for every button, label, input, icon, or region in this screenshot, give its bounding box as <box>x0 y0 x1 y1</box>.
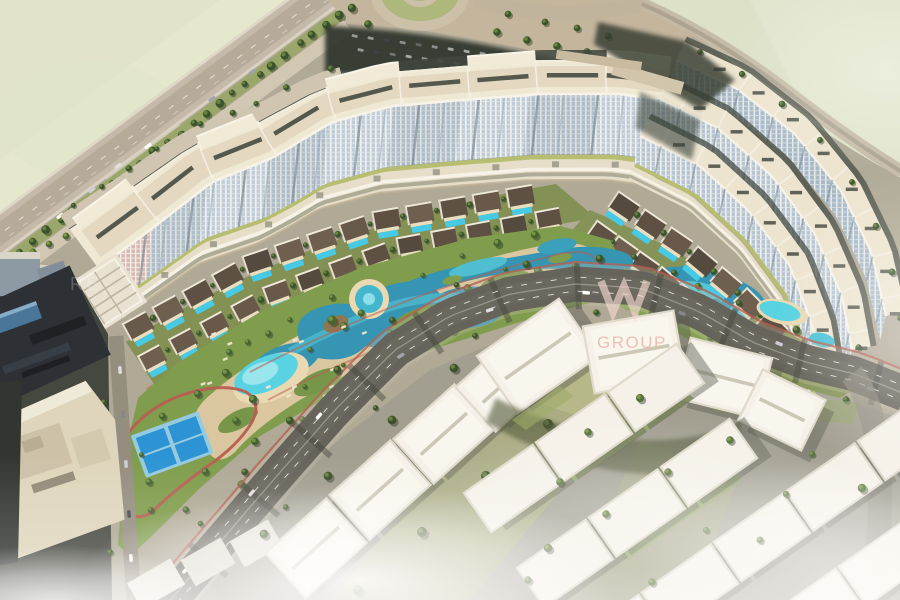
svg-text:GROUP: GROUP <box>597 333 667 352</box>
svg-text:RE: RE <box>70 274 103 294</box>
